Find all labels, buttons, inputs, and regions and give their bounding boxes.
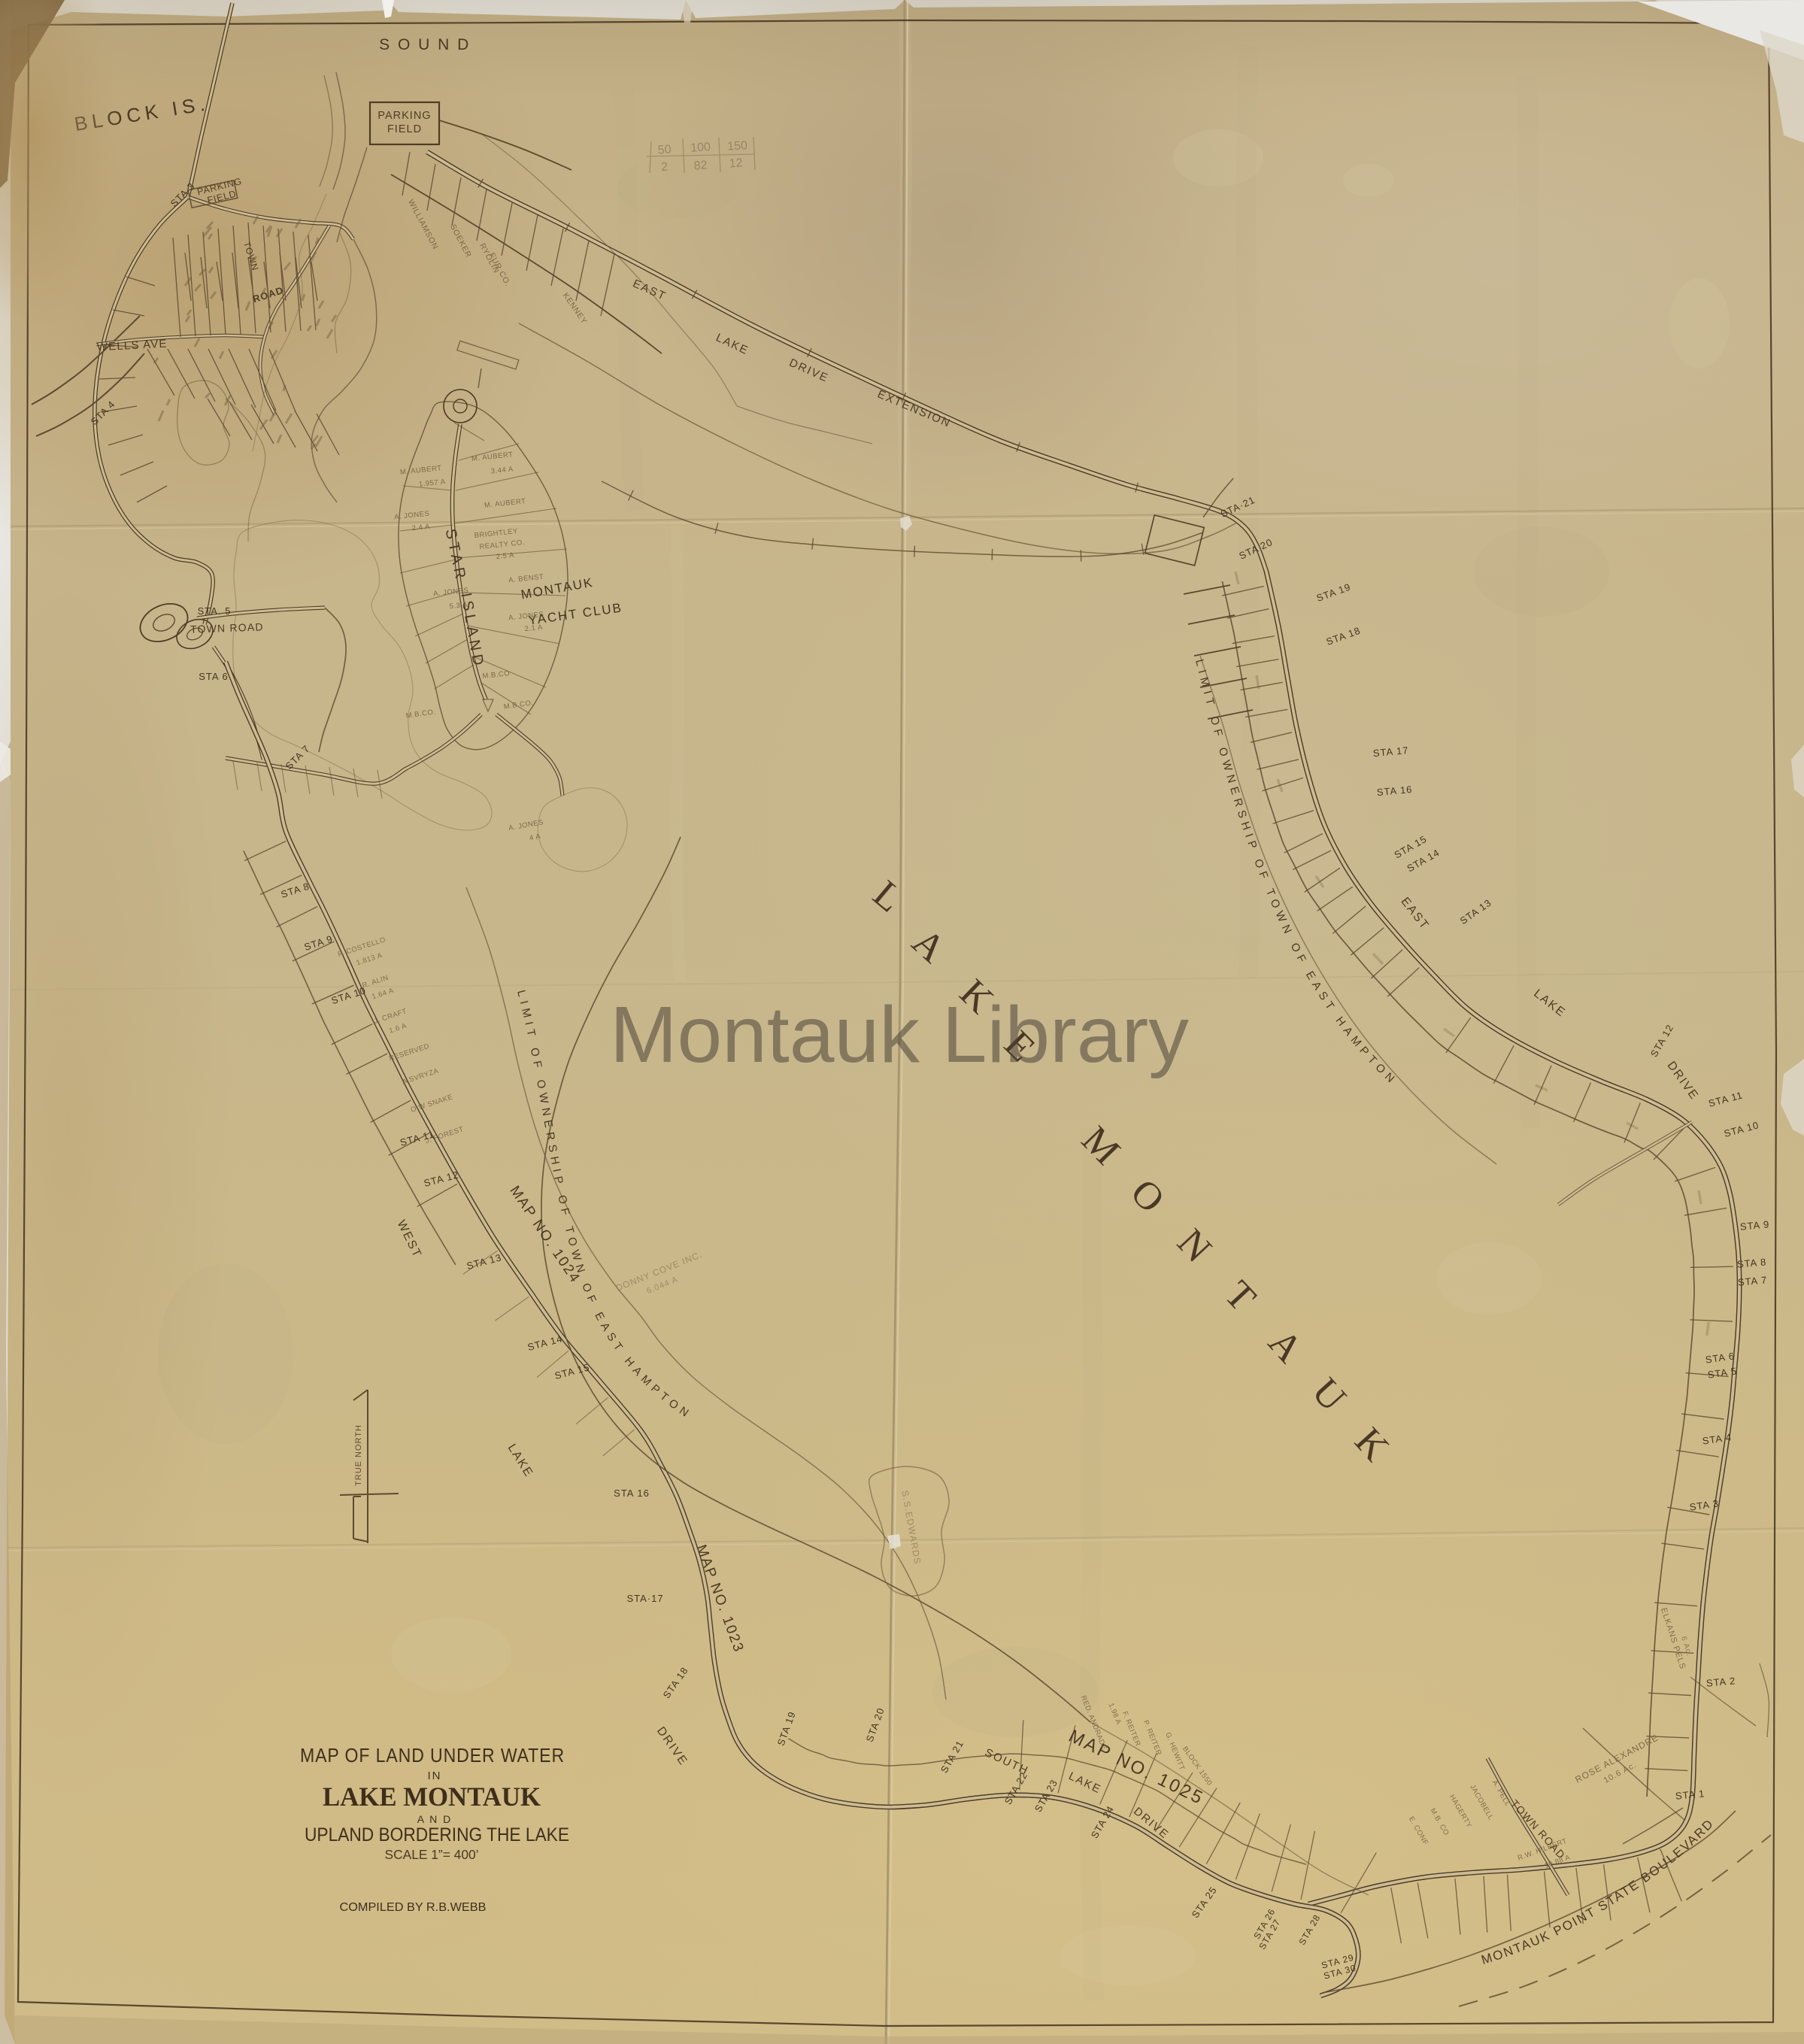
svg-text:82: 82 xyxy=(693,159,708,172)
svg-text:150: 150 xyxy=(727,139,748,153)
svg-text:50: 50 xyxy=(657,143,672,156)
svg-text:COMPILED BY R.B.WEBB: COMPILED BY R.B.WEBB xyxy=(340,1901,487,1914)
svg-text:STA·17: STA·17 xyxy=(626,1593,663,1604)
svg-text:2: 2 xyxy=(661,161,669,174)
svg-text:S O U N D: S O U N D xyxy=(379,36,471,53)
svg-text:FIELD: FIELD xyxy=(387,123,422,135)
svg-text:PARKING: PARKING xyxy=(377,110,431,122)
svg-text:A N D: A N D xyxy=(417,1813,453,1825)
svg-text:STA. 5: STA. 5 xyxy=(198,605,232,617)
svg-text:TOWN ROAD: TOWN ROAD xyxy=(190,620,264,635)
svg-text:MAP OF LAND UNDER WATER: MAP OF LAND UNDER WATER xyxy=(300,1744,565,1767)
svg-text:STA 16: STA 16 xyxy=(614,1488,650,1499)
svg-text:Montauk Library: Montauk Library xyxy=(610,990,1189,1079)
svg-text:UPLAND BORDERING THE LAKE: UPLAND BORDERING THE LAKE xyxy=(305,1824,569,1845)
svg-text:TRUE NORTH: TRUE NORTH xyxy=(354,1424,363,1486)
svg-text:100: 100 xyxy=(690,141,711,155)
svg-text:IN: IN xyxy=(428,1770,442,1782)
svg-text:12: 12 xyxy=(729,156,743,170)
svg-text:STA 6: STA 6 xyxy=(199,671,228,682)
svg-text:SCALE 1”= 400’: SCALE 1”= 400’ xyxy=(385,1847,479,1862)
svg-text:LAKE MONTAUK: LAKE MONTAUK xyxy=(323,1782,541,1812)
